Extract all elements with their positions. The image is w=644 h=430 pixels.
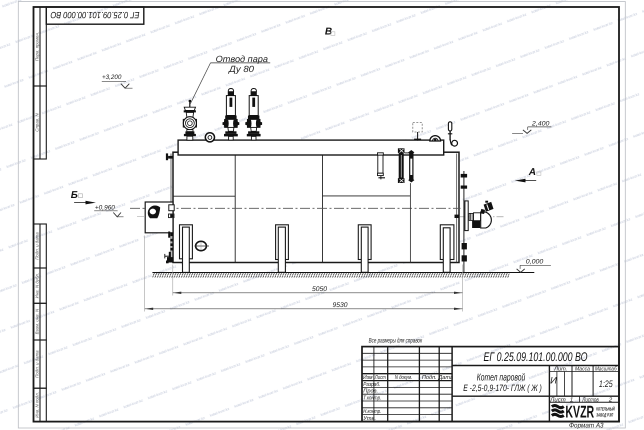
svg-text:Взам. инв. N: Взам. инв. N: [35, 308, 40, 334]
svg-text:+3,200: +3,200: [102, 74, 122, 81]
svg-text:2: 2: [608, 397, 613, 404]
svg-text:Подп.: Подп.: [422, 374, 437, 381]
svg-text:ЗАВОД РЭП: ЗАВОД РЭП: [596, 412, 613, 417]
svg-text:Формат А3: Формат А3: [569, 423, 604, 430]
svg-text:Перв. примен.: Перв. примен.: [35, 32, 40, 61]
svg-text:KVZR: KVZR: [565, 402, 594, 421]
svg-text:Т.контр.: Т.контр.: [363, 395, 381, 401]
svg-text:ЕГ 0.25.09.101.00.000 ВО: ЕГ 0.25.09.101.00.000 ВО: [484, 350, 588, 364]
svg-text:Пров.: Пров.: [363, 389, 378, 395]
svg-text:Подп. и дата: Подп. и дата: [35, 350, 40, 378]
svg-text:А: А: [528, 167, 536, 178]
svg-text:Отвод пара: Отвод пара: [216, 54, 268, 64]
svg-text:Утв.: Утв.: [362, 416, 376, 422]
svg-text:+0,960: +0,960: [95, 204, 115, 211]
svg-text:5050: 5050: [312, 286, 327, 293]
svg-text:Инв. N подл.: Инв. N подл.: [35, 392, 40, 418]
svg-text:Масса: Масса: [575, 366, 590, 372]
svg-text:N докум.: N докум.: [395, 374, 413, 381]
svg-text:Котел паровой: Котел паровой: [477, 372, 526, 383]
svg-text:Инв. N дубл.: Инв. N дубл.: [35, 273, 40, 298]
svg-text:2,400: 2,400: [531, 120, 550, 127]
svg-text:Лист: Лист: [549, 397, 565, 404]
svg-text:Б: Б: [71, 190, 78, 201]
svg-text:Н.контр.: Н.контр.: [363, 409, 381, 415]
svg-text:Ду 80: Ду 80: [228, 64, 254, 74]
svg-text:Дата: Дата: [437, 375, 453, 381]
svg-text:Справ. N: Справ. N: [35, 112, 40, 131]
svg-text:Лит.: Лит.: [553, 366, 567, 372]
svg-text:Разраб.: Разраб.: [363, 381, 380, 388]
svg-text:Е -2,5-0,9-170- ГЛЖ ( Ж ): Е -2,5-0,9-170- ГЛЖ ( Ж ): [463, 383, 542, 393]
svg-text:Изм: Изм: [363, 375, 373, 381]
svg-text:Подп. и дата: Подп. и дата: [35, 232, 40, 260]
svg-text:И: И: [550, 375, 557, 386]
svg-text:КОТЕЛЬНЫЙ: КОТЕЛЬНЫЙ: [596, 406, 615, 412]
svg-text:ЕГ 0.25.09.101.00.000 ВО: ЕГ 0.25.09.101.00.000 ВО: [51, 10, 140, 20]
svg-text:Лист: Лист: [374, 375, 386, 381]
svg-text:1:25: 1:25: [599, 379, 613, 390]
svg-text:Все размеры для справок: Все размеры для справок: [369, 337, 423, 344]
svg-text:Масштаб: Масштаб: [595, 365, 617, 372]
svg-text:0,000: 0,000: [526, 259, 544, 266]
svg-text:9530: 9530: [333, 302, 348, 309]
